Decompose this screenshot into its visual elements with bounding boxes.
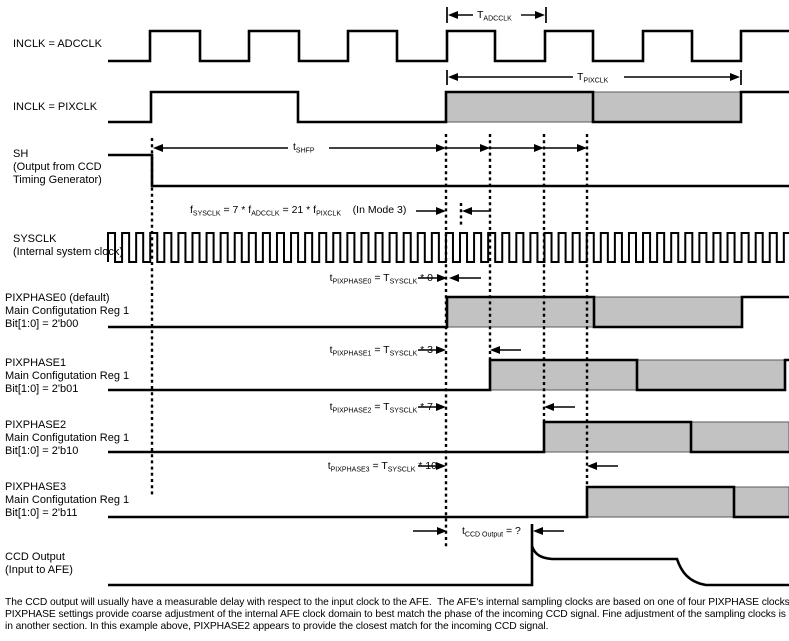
t-pixphase0-label: tPIXPHASE0 = TSYSCLK * 0: [330, 271, 433, 290]
shfp-arrowhead-icon: [153, 144, 163, 152]
dim-t-adcclk-label: TADCCLK: [477, 8, 512, 27]
subscript-text: SYSCLK: [390, 351, 418, 358]
label-text: * 3: [417, 344, 433, 356]
signal-label-pixphase0: PIXPHASE0 (default) Main Configutation R…: [5, 292, 129, 331]
footnote-line: in another section. In this example abov…: [5, 621, 787, 633]
shfp-arrowhead-icon: [436, 144, 446, 152]
shade-box-pixphase3: [587, 487, 789, 517]
waveform-sysclk: [108, 233, 789, 262]
footnote-line: The CCD output will usually have a measu…: [5, 597, 787, 609]
subscript-text: SYSCLK: [390, 279, 418, 286]
f-sysclk-formula-arrowhead-icon: [462, 207, 472, 215]
t-pixphase1-label: tPIXPHASE1 = TSYSCLK * 3: [330, 343, 433, 362]
signal-label-pixphase3: PIXPHASE3 Main Configutation Reg 1 Bit[1…: [5, 481, 129, 520]
subscript-text: PIXPHASE0: [332, 279, 371, 286]
subscript-text: SYSCLK: [193, 211, 221, 218]
signal-label-ccd-output: CCD Output (Input to AFE): [5, 551, 73, 577]
label-text: * 0: [417, 272, 433, 284]
t-ccd-output-arrowhead-icon: [533, 527, 543, 535]
signal-label-inclk-adcclk: INCLK = ADCCLK: [13, 38, 102, 51]
t-pixphase3-arrowhead-icon: [436, 462, 446, 470]
subscript-text: PIXPHASE3: [331, 467, 370, 474]
t-pixphase1-arrowhead-icon: [490, 346, 500, 354]
label-text: = 7 * f: [221, 204, 252, 216]
signal-label-sysclk: SYSCLK (Internal system clock): [13, 233, 123, 259]
f-sysclk-formula-label: fSYSCLK = 7 * fADCCLK = 21 * fPIXCLK (In…: [190, 203, 406, 222]
delay-chain-arrowhead-icon: [534, 144, 544, 152]
footnote-line: PIXPHASE settings provide coarse adjustm…: [5, 609, 787, 621]
subscript-text: ADCCLK: [251, 211, 279, 218]
signal-label-sh: SH (Output from CCD Timing Generator): [13, 148, 102, 187]
delay-chain-arrowhead-icon: [577, 144, 587, 152]
signal-label-pixphase2: PIXPHASE2 Main Configutation Reg 1 Bit[1…: [5, 419, 129, 458]
label-text: = ?: [503, 525, 521, 537]
subscript-text: PIXPHASE2: [332, 408, 371, 415]
subscript-text: ADCCLK: [483, 16, 511, 23]
subscript-text: PIXCLK: [316, 211, 341, 218]
waveform-sh: [108, 155, 789, 186]
t-pixphase3-label: tPIXPHASE3 = TSYSCLK * 10: [328, 459, 437, 478]
label-text: * 10: [415, 460, 437, 472]
label-text: = T: [370, 460, 388, 472]
subscript-text: CCD Output: [465, 532, 503, 539]
subscript-text: SYSCLK: [390, 408, 418, 415]
t-ccd-output-label: tCCD Output = ?: [462, 524, 521, 543]
waveform-inclk-adcclk: [108, 31, 789, 61]
signal-label-inclk-pixclk: INCLK = PIXCLK: [13, 101, 97, 114]
t-pixphase2-arrowhead-icon: [544, 403, 554, 411]
label-text: = T: [371, 344, 389, 356]
waveform-ccd-output: [108, 546, 789, 585]
label-text: = T: [371, 401, 389, 413]
shade-box-pixphase2: [544, 422, 789, 452]
label-text: = 21 * f: [280, 204, 316, 216]
subscript-text: PIXPHASE1: [332, 351, 371, 358]
label-text: = T: [371, 272, 389, 284]
subscript-text: SYSCLK: [388, 467, 416, 474]
t-pixphase1-arrowhead-icon: [436, 346, 446, 354]
t-pixphase2-arrowhead-icon: [436, 403, 446, 411]
subscript-text: PIXCLK: [583, 78, 608, 85]
t-pixphase0-arrowhead-icon: [449, 274, 459, 282]
timing-diagram: INCLK = ADCCLKINCLK = PIXCLKSH (Output f…: [0, 0, 789, 641]
label-text: (In Mode 3): [341, 204, 406, 216]
delay-chain-arrowhead-icon: [480, 144, 490, 152]
dim-t-pixclk-label: TPIXCLK: [577, 70, 608, 89]
signal-label-pixphase1: PIXPHASE1 Main Configutation Reg 1 Bit[1…: [5, 357, 129, 396]
subscript-text: SHFP: [296, 148, 315, 155]
label-text: * 7: [417, 401, 433, 413]
f-sysclk-formula-arrowhead-icon: [436, 207, 446, 215]
t-pixphase3-arrowhead-icon: [587, 462, 597, 470]
t-pixphase2-label: tPIXPHASE2 = TSYSCLK * 7: [330, 400, 433, 419]
shfp-label: tSHFP: [293, 140, 315, 159]
footnote: The CCD output will usually have a measu…: [5, 597, 787, 633]
